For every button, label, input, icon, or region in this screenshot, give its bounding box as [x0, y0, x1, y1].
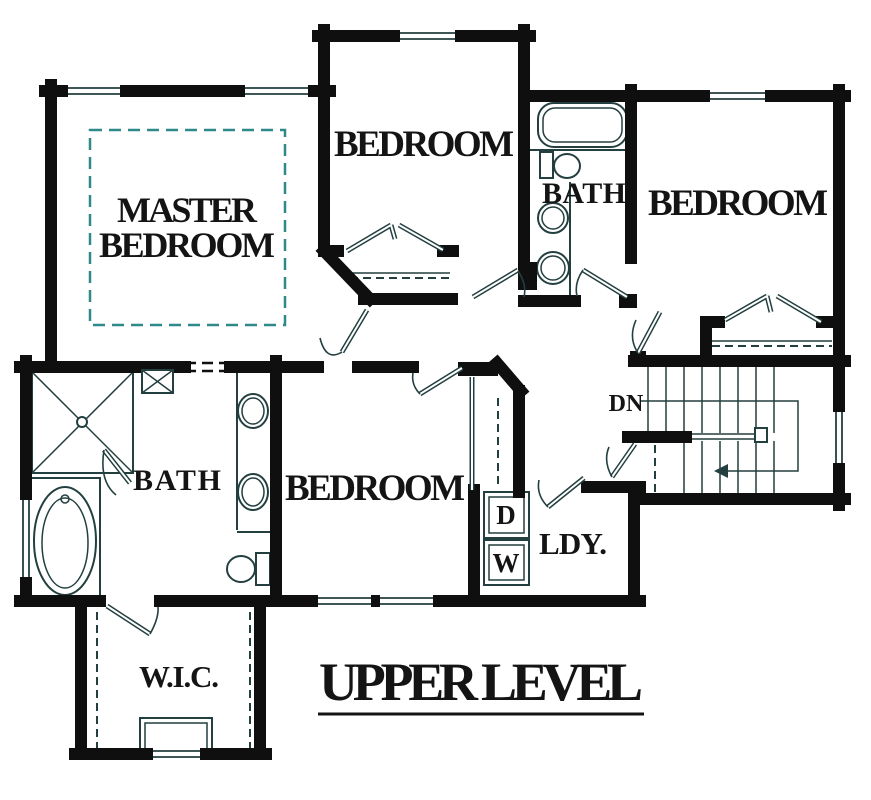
door-swing-arcs	[103, 270, 638, 634]
room-label-bedroom-bottom: BEDROOM	[285, 468, 465, 509]
bathtub-icon	[538, 103, 627, 147]
window	[245, 85, 308, 97]
room-label-laundry: LDY.	[539, 526, 607, 561]
room-label-bath-hall: BATH	[542, 177, 626, 210]
window	[380, 595, 433, 607]
doors	[103, 225, 821, 634]
plan-title: UPPER LEVEL	[319, 652, 643, 712]
stair-treads-upper	[648, 367, 774, 433]
stairs-down-label: DN	[609, 391, 644, 417]
window	[400, 30, 455, 42]
window	[68, 85, 120, 97]
window	[20, 500, 32, 577]
sink-icon	[537, 252, 569, 284]
washer-label: W	[493, 548, 520, 578]
floor-plan-canvas: MASTER BEDROOM BEDROOM BEDROOM BEDROOM B…	[0, 0, 871, 800]
vanity-counter	[237, 373, 270, 532]
door-leaf	[104, 225, 821, 634]
linen-cabinet-icon	[142, 370, 173, 393]
toilet-icon	[227, 556, 255, 582]
window	[710, 90, 765, 102]
garden-tub-icon	[30, 478, 100, 599]
dryer-label: D	[496, 500, 516, 530]
room-label-bedroom-right: BEDROOM	[648, 183, 828, 224]
toilet-icon	[540, 152, 553, 178]
room-label-bedroom-top: BEDROOM	[334, 124, 514, 165]
stair-newel	[755, 428, 767, 442]
stair-direction-arrow	[714, 464, 728, 478]
room-label-master-line2: BEDROOM	[99, 225, 275, 265]
floor-plan: MASTER BEDROOM BEDROOM BEDROOM BEDROOM B…	[0, 0, 871, 800]
room-label-bath-master: BATH	[133, 464, 221, 497]
room-label-wic: W.I.C.	[139, 659, 219, 694]
closet-shelf-line	[350, 273, 832, 341]
window	[318, 595, 371, 607]
room-label-master-line1: MASTER	[117, 190, 258, 230]
cased-opening	[185, 363, 230, 371]
window	[833, 412, 845, 463]
window	[153, 748, 200, 760]
stair-rail	[682, 434, 762, 439]
stair-treads-lower	[684, 441, 774, 499]
